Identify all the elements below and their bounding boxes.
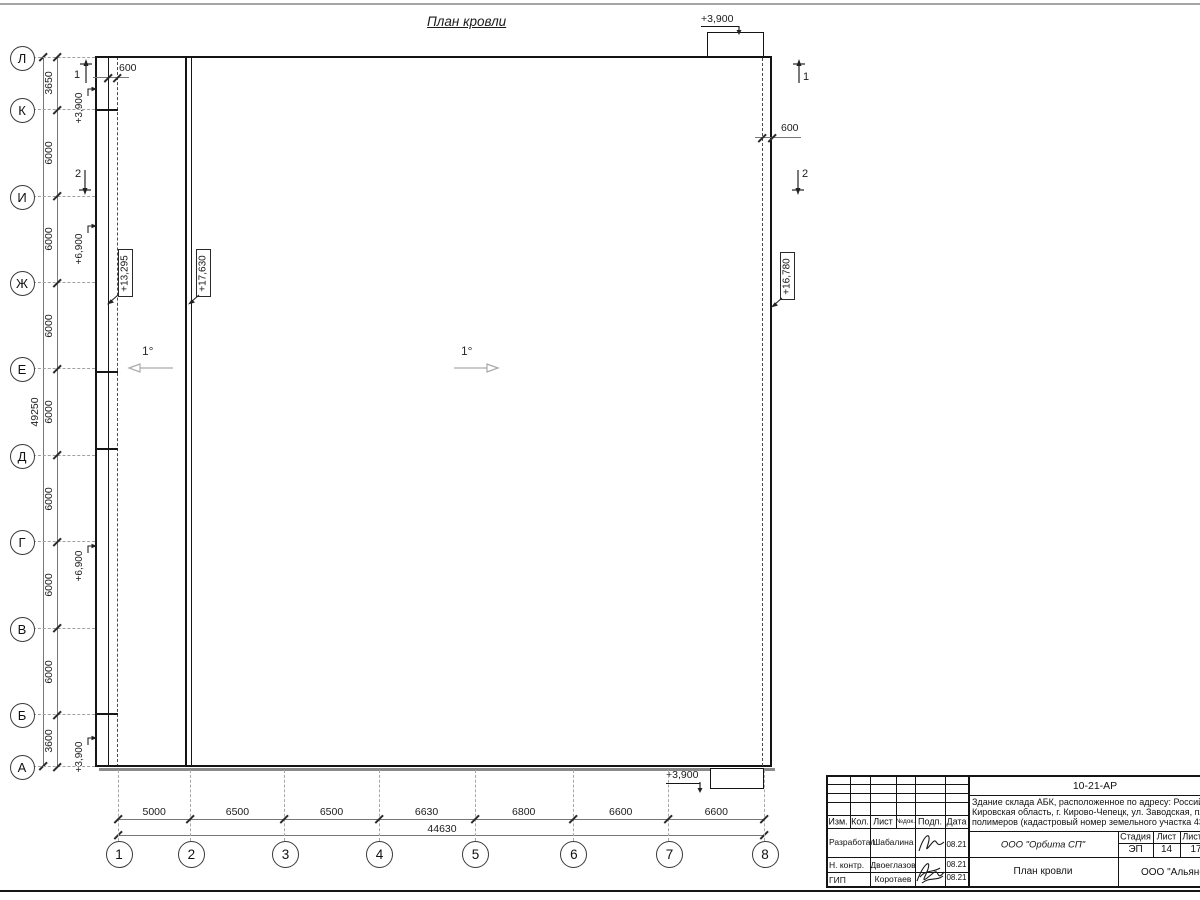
main-roof-outline (185, 56, 772, 767)
tb-stage-value: ЭП (1128, 845, 1142, 855)
slope-arrow-left-icon (125, 360, 177, 376)
axis-circle-col-1: 1 (106, 841, 133, 868)
wall-step-B (95, 713, 118, 715)
axis-col-leader-4 (379, 770, 380, 841)
elevation-roof-low: +13,295 (118, 249, 133, 297)
tb-firm: ООО "Альянс (1141, 868, 1200, 878)
roof-strip-top-edge (95, 56, 186, 58)
elevation-wall-bottom-left: +3,900 (75, 742, 85, 773)
offset-dim-top-left: 600 (119, 63, 137, 74)
axis-circle-col-3: 3 (272, 841, 299, 868)
axis-col-leader-2 (190, 770, 191, 841)
tb-date-ncontrol: 08.21 (946, 861, 966, 869)
slope-label-right: 1° (461, 345, 472, 357)
bottom-dim-segment: 6600 (609, 807, 632, 818)
tb-name-ncontrol: Двоеглазов (870, 860, 915, 869)
offset-dim-line-top-left (93, 77, 129, 78)
tb-role-developer: Разработал (829, 838, 875, 847)
roof-strip-inner-edge (108, 57, 109, 767)
left-dim-segment: 6000 (44, 660, 55, 683)
axis-circle-col-4: 4 (366, 841, 393, 868)
tb-col-data: Дата (947, 817, 967, 826)
tb-address-line-1: Здание склада АБК, расположенное по адре… (972, 798, 1200, 807)
axis-circle-col-8: 8 (752, 841, 779, 868)
tb-date-developer: 08.21 (946, 841, 966, 849)
axis-circle-row-А: А (10, 755, 35, 780)
wall-step-E (95, 371, 118, 373)
elevation-roof-low-text: +13,295 (120, 255, 131, 291)
canopy-bottom-arrow-icon (695, 782, 705, 794)
axis-circle-row-К: К (10, 98, 35, 123)
axis-row-leader-К (33, 109, 95, 110)
main-roof-axis-dashed-right (762, 58, 763, 766)
elevation-roof-high-text: +17,630 (198, 255, 209, 291)
sheet-frame-top (0, 3, 1200, 5)
tb-stage-header: Стадия (1120, 833, 1151, 842)
canopy-top-arrow-icon (734, 26, 744, 36)
tb-sheet-value: 14 (1161, 845, 1172, 855)
section-1-left-mark-icon (79, 58, 93, 84)
axis-circle-row-Ж: Ж (10, 271, 35, 296)
section-1-right-mark-icon (792, 58, 806, 84)
elevation-wall-bottom-left-arrow-icon (85, 734, 99, 746)
tb-name-gip: Коротаев (875, 875, 912, 884)
tb-role-gip: ГИП (829, 876, 846, 885)
bottom-dim-line-total (118, 835, 764, 836)
elevation-roof-high: +17,630 (196, 249, 211, 297)
left-dim-segment: 6000 (44, 401, 55, 424)
signature-developer-icon (916, 831, 946, 855)
tb-col-ndok: №док. (896, 818, 915, 825)
left-dim-segment: 6000 (44, 573, 55, 596)
axis-row-leader-Г (33, 541, 95, 542)
left-dim-segment: 3650 (44, 72, 55, 95)
axis-circle-row-В: В (10, 617, 35, 642)
axis-circle-col-6: 6 (560, 841, 587, 868)
axis-row-leader-А (33, 766, 95, 767)
axis-col-leader-6 (573, 770, 574, 841)
axis-circle-row-И: И (10, 185, 35, 210)
tb-sheets-header: Листов (1182, 833, 1200, 842)
bottom-dim-segment: 6500 (320, 807, 343, 818)
roof-strip-axis-dashed (117, 57, 118, 767)
bottom-dim-segment: 5000 (143, 807, 166, 818)
slope-label-left: 1° (142, 345, 153, 357)
bottom-total-dim: 44630 (427, 824, 456, 835)
tb-sheet-title: План кровли (1014, 867, 1073, 877)
left-dim-segment: 6000 (44, 487, 55, 510)
slope-arrow-right-icon (450, 360, 502, 376)
tb-sheets-value: 17 (1190, 845, 1200, 855)
tb-col-podp: Подп. (918, 817, 942, 826)
axis-circle-row-Л: Л (10, 46, 35, 71)
left-dim-line-segments (57, 57, 58, 767)
canopy-bottom-elevation: +3,900 (666, 770, 698, 781)
axis-circle-col-7: 7 (656, 841, 683, 868)
axis-row-leader-В (33, 628, 95, 629)
left-dim-segment: 6000 (44, 228, 55, 251)
axis-circle-col-2: 2 (178, 841, 205, 868)
tb-role-ncontrol: Н. контр. (829, 861, 864, 870)
drawing-sheet: План кровли +3,900 +3,900 1° 1° 1 (0, 0, 1200, 900)
tb-name-developer: Шабалина (872, 838, 913, 847)
elevation-wall-left-lower-arrow-icon (85, 542, 99, 554)
axis-row-leader-Ж (33, 282, 95, 283)
elevation-roof-low-arrow-icon (106, 294, 120, 306)
axis-col-leader-8 (764, 770, 765, 841)
tb-date-gip: 08.21 (946, 874, 966, 882)
main-roof-double-line (191, 57, 192, 766)
axis-col-leader-5 (475, 770, 476, 841)
axis-circle-row-Д: Д (10, 444, 35, 469)
bottom-dim-segment: 6500 (226, 807, 249, 818)
axis-col-leader-3 (284, 770, 285, 841)
tb-address-line-2: Кировская область, г. Кирово-Чепецк, ул.… (972, 808, 1200, 817)
elevation-roof-right-text: +16,780 (782, 258, 793, 294)
axis-circle-row-Б: Б (10, 703, 35, 728)
axis-col-leader-1 (118, 770, 119, 841)
elevation-roof-right-arrow-icon (770, 297, 784, 309)
bottom-dim-segment: 6630 (415, 807, 438, 818)
wall-step-D (95, 448, 118, 450)
axis-row-leader-Б (33, 714, 95, 715)
elevation-roof-right: +16,780 (780, 252, 795, 300)
signature-gip-icon (913, 857, 947, 887)
tb-col-list: Лист (873, 817, 893, 826)
tb-address-line-3: полимеров (кадастровый номер земельного … (972, 818, 1200, 827)
elevation-wall-left-upper: +6,900 (75, 234, 85, 265)
sheet-frame-bottom (0, 890, 1200, 892)
elevation-wall-left-lower: +6,900 (75, 551, 85, 582)
tb-sheet-header: Лист (1157, 833, 1177, 842)
axis-col-leader-7 (668, 770, 669, 841)
elevation-wall-left-upper-arrow-icon (85, 222, 99, 234)
section-2-left-mark-icon (78, 170, 92, 196)
axis-circle-row-Е: Е (10, 357, 35, 382)
left-dim-segment: 6000 (44, 141, 55, 164)
left-dim-segment: 3600 (44, 729, 55, 752)
tb-company: ООО "Орбита СП" (1001, 840, 1085, 850)
elevation-roof-high-arrow-icon (187, 294, 201, 306)
axis-row-leader-Д (33, 455, 95, 456)
wall-step-K (95, 109, 118, 111)
bottom-dim-segment: 6800 (512, 807, 535, 818)
bottom-dim-segment: 6600 (705, 807, 728, 818)
roof-strip-left-edge (95, 57, 97, 767)
elevation-wall-top-left-arrow-icon (85, 85, 99, 97)
axis-row-leader-Л (33, 57, 95, 58)
roof-strip-bottom-edge (95, 765, 186, 767)
elevation-wall-top-left: +3,900 (75, 93, 85, 124)
left-total-dim: 49250 (30, 397, 41, 426)
tb-doc-number: 10-21-АР (1073, 781, 1117, 792)
axis-row-leader-Е (33, 368, 95, 369)
tb-col-izm: Изм. (828, 817, 847, 826)
tb-col-kol: Кол. (851, 817, 869, 826)
section-2-right-mark-icon (791, 170, 805, 196)
axis-row-leader-И (33, 196, 95, 197)
axis-circle-col-5: 5 (462, 841, 489, 868)
offset-dim-right: 600 (781, 123, 799, 134)
canopy-top-elevation: +3,900 (701, 14, 733, 25)
axis-circle-row-Г: Г (10, 530, 35, 555)
canopy-bottom (710, 768, 764, 789)
left-dim-segment: 6000 (44, 314, 55, 337)
plan-title: План кровли (427, 15, 506, 29)
